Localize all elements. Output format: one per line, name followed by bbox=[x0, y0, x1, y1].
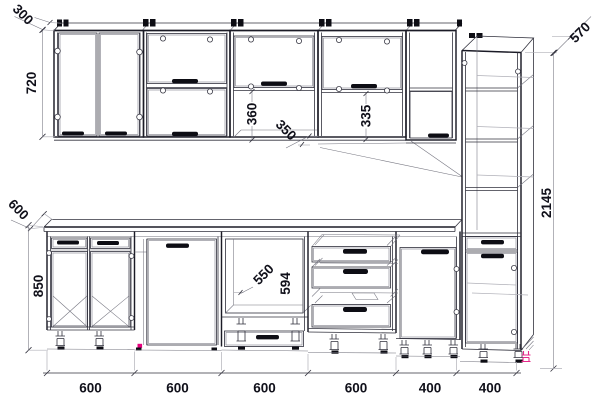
svg-text:600: 600 bbox=[345, 381, 368, 396]
svg-text:720: 720 bbox=[24, 72, 39, 95]
svg-text:2145: 2145 bbox=[539, 187, 554, 218]
svg-text:400: 400 bbox=[419, 381, 442, 396]
svg-text:600: 600 bbox=[79, 381, 102, 396]
svg-text:594: 594 bbox=[278, 272, 293, 295]
svg-text:850: 850 bbox=[31, 275, 46, 298]
svg-text:360: 360 bbox=[245, 103, 260, 126]
svg-text:335: 335 bbox=[359, 104, 374, 127]
svg-text:600: 600 bbox=[166, 381, 189, 396]
svg-text:600: 600 bbox=[253, 381, 276, 396]
svg-text:400: 400 bbox=[479, 381, 502, 396]
